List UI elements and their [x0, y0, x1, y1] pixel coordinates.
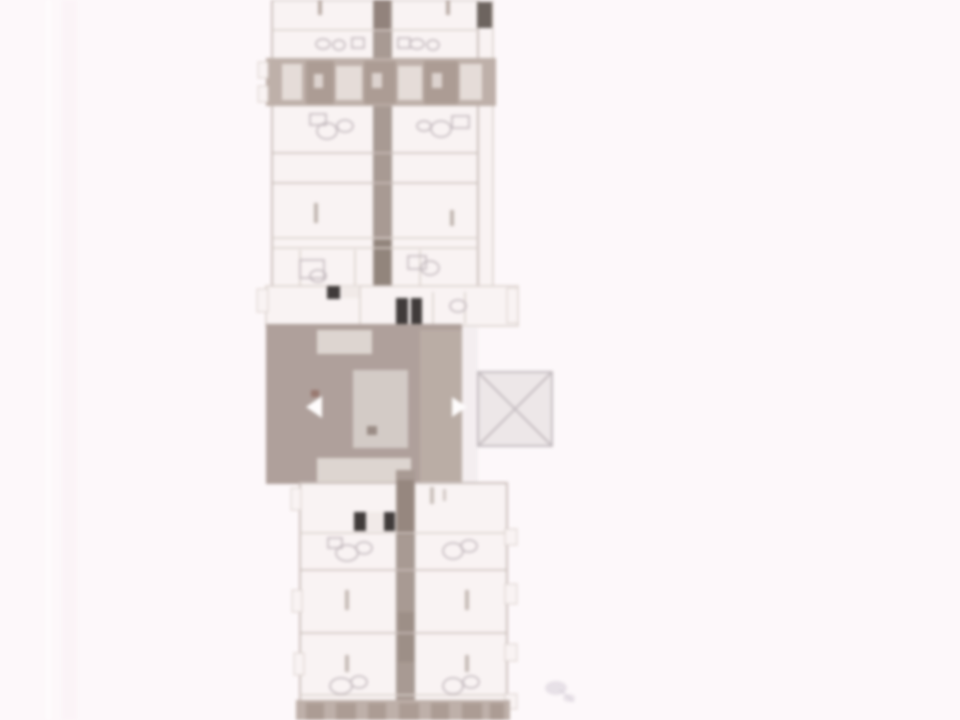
fade-overlay [240, 0, 580, 720]
video-frame [0, 0, 960, 720]
bg-streak-1 [46, 0, 51, 720]
floor-plan-drawing [0, 0, 960, 720]
bg-streak-2 [62, 0, 77, 720]
floor-plan-features [46, 0, 580, 720]
